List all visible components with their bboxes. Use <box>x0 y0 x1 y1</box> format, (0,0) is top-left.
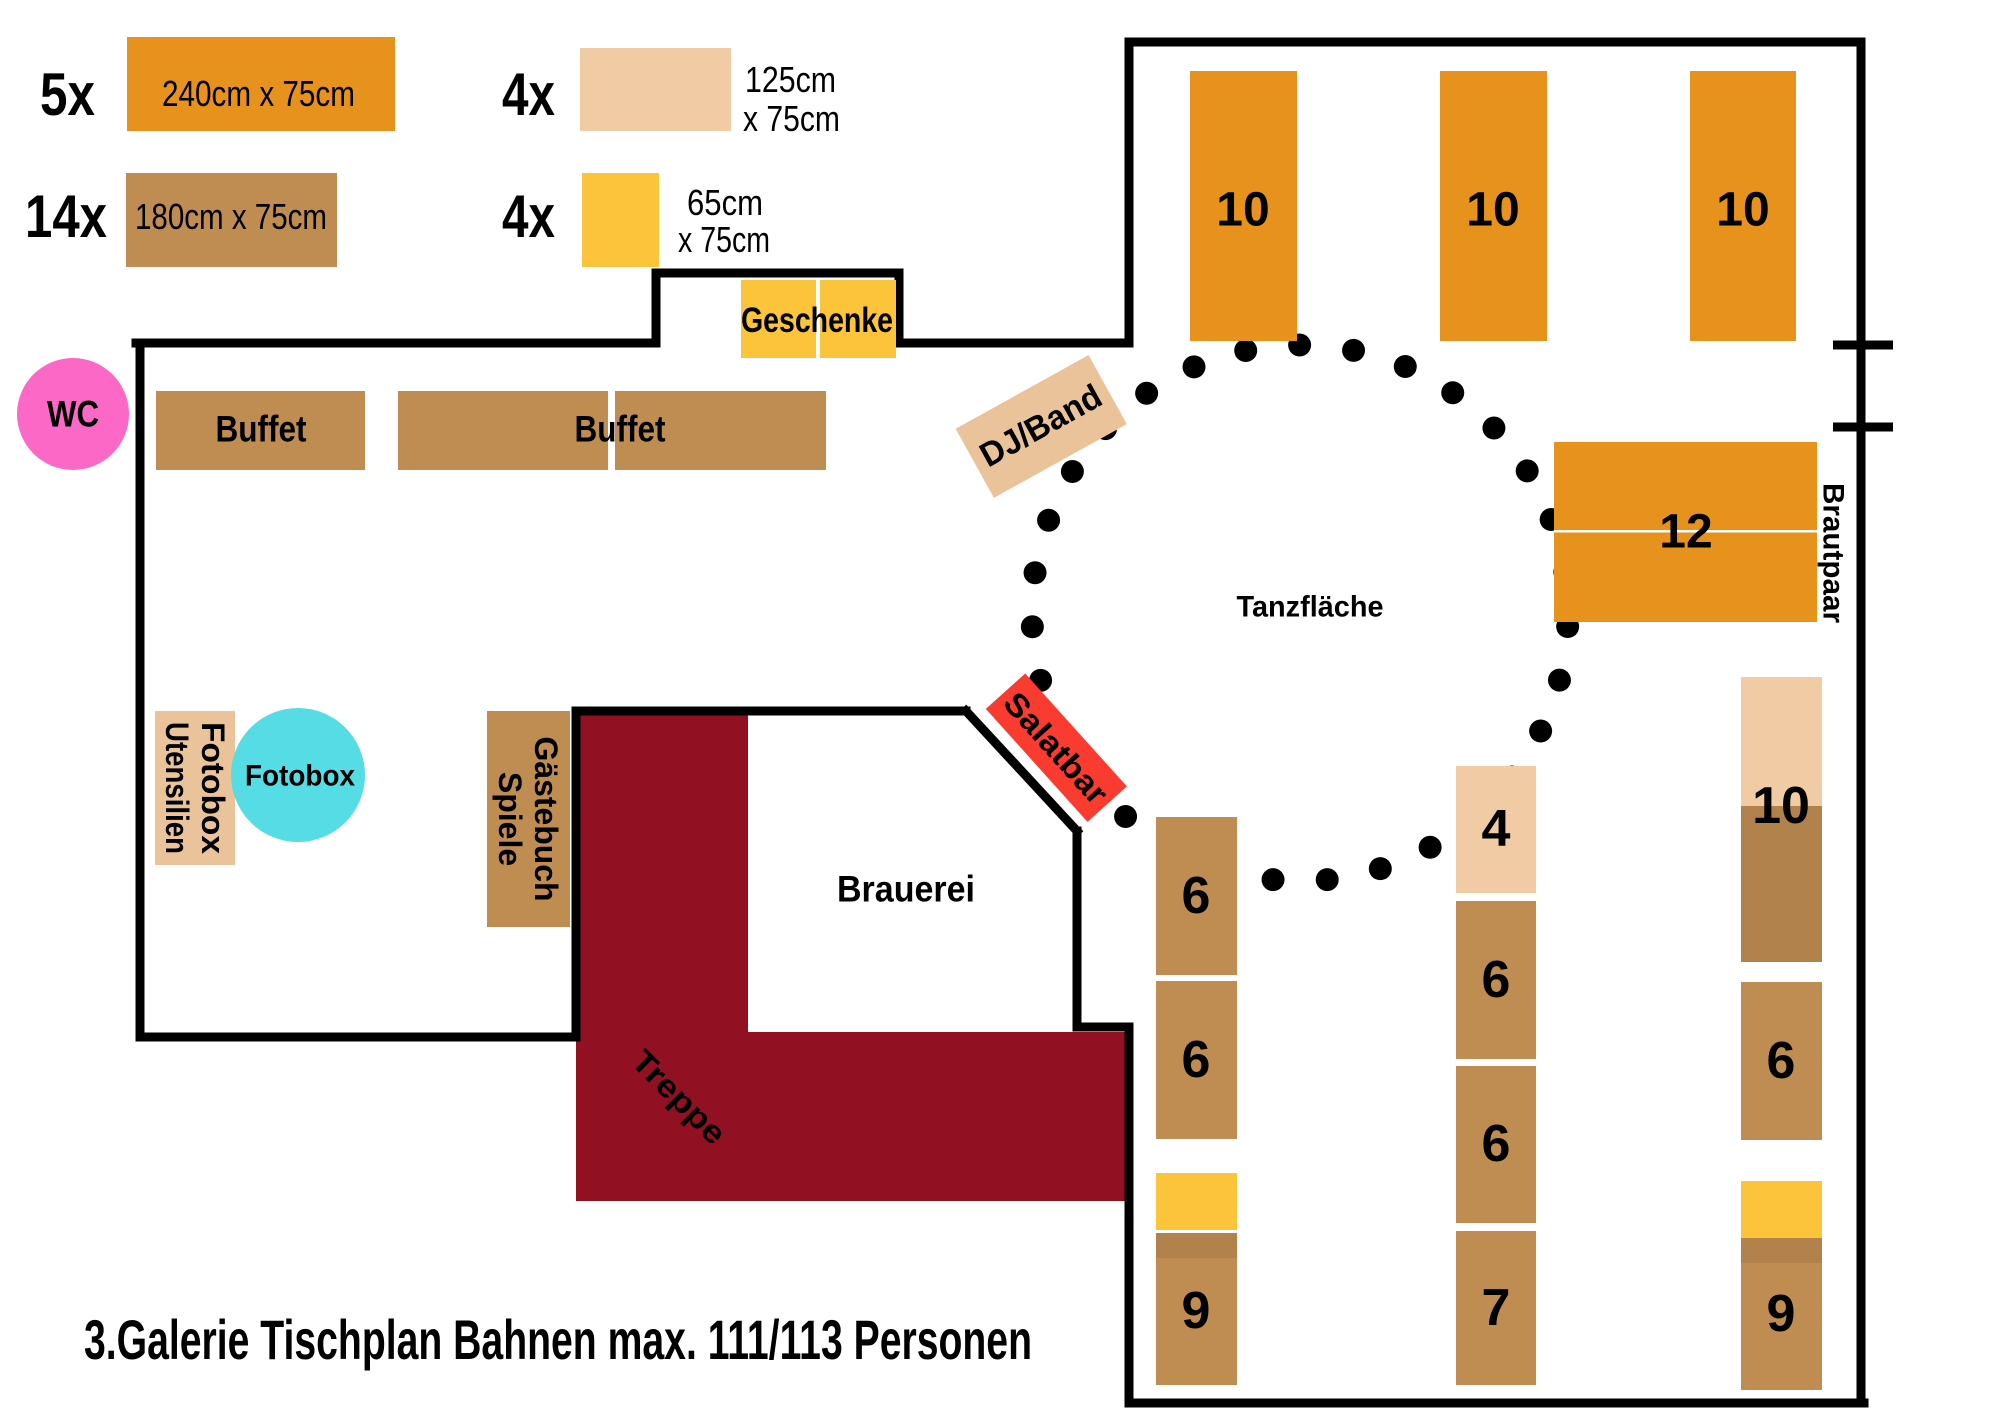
svg-text:10: 10 <box>1716 184 1769 237</box>
svg-text:Brauerei: Brauerei <box>837 869 975 910</box>
svg-text:Buffet: Buffet <box>216 409 307 450</box>
svg-text:Utensilien: Utensilien <box>159 722 195 854</box>
svg-text:5x: 5x <box>40 61 95 128</box>
svg-text:6: 6 <box>1767 1032 1796 1090</box>
svg-text:Buffet: Buffet <box>575 409 666 450</box>
svg-text:65cm: 65cm <box>687 182 763 223</box>
svg-text:Geschenke: Geschenke <box>741 301 893 340</box>
svg-text:10: 10 <box>1216 184 1269 237</box>
svg-text:Spiele: Spiele <box>492 772 528 866</box>
svg-text:14x: 14x <box>25 183 107 250</box>
svg-text:240cm x 75cm: 240cm x 75cm <box>162 73 355 114</box>
svg-text:Fotobox: Fotobox <box>195 722 231 854</box>
svg-text:Tanzfläche: Tanzfläche <box>1237 591 1384 624</box>
svg-text:7: 7 <box>1482 1279 1511 1337</box>
svg-text:10: 10 <box>1752 777 1810 835</box>
svg-text:Fotobox: Fotobox <box>245 760 355 793</box>
svg-text:Gästebuch: Gästebuch <box>528 737 564 902</box>
svg-text:6: 6 <box>1182 1031 1211 1089</box>
svg-text:10: 10 <box>1466 184 1519 237</box>
svg-text:6: 6 <box>1482 951 1511 1009</box>
svg-text:WC: WC <box>47 394 99 435</box>
svg-text:6: 6 <box>1482 1115 1511 1173</box>
svg-text:125cm: 125cm <box>745 59 836 100</box>
svg-text:x 75cm: x 75cm <box>678 219 770 260</box>
svg-text:9: 9 <box>1767 1285 1796 1343</box>
svg-text:4: 4 <box>1482 800 1511 858</box>
svg-text:12: 12 <box>1659 506 1712 559</box>
svg-text:Brautpaar: Brautpaar <box>1817 483 1850 623</box>
svg-text:6: 6 <box>1182 867 1211 925</box>
svg-text:3.Galerie Tischplan Bahnen max: 3.Galerie Tischplan Bahnen max. 111/113 … <box>84 1308 1032 1371</box>
svg-text:9: 9 <box>1182 1282 1211 1340</box>
svg-text:4x: 4x <box>502 183 555 250</box>
svg-text:4x: 4x <box>502 61 555 128</box>
svg-text:x 75cm: x 75cm <box>743 98 840 139</box>
svg-text:180cm x 75cm: 180cm x 75cm <box>135 196 327 237</box>
